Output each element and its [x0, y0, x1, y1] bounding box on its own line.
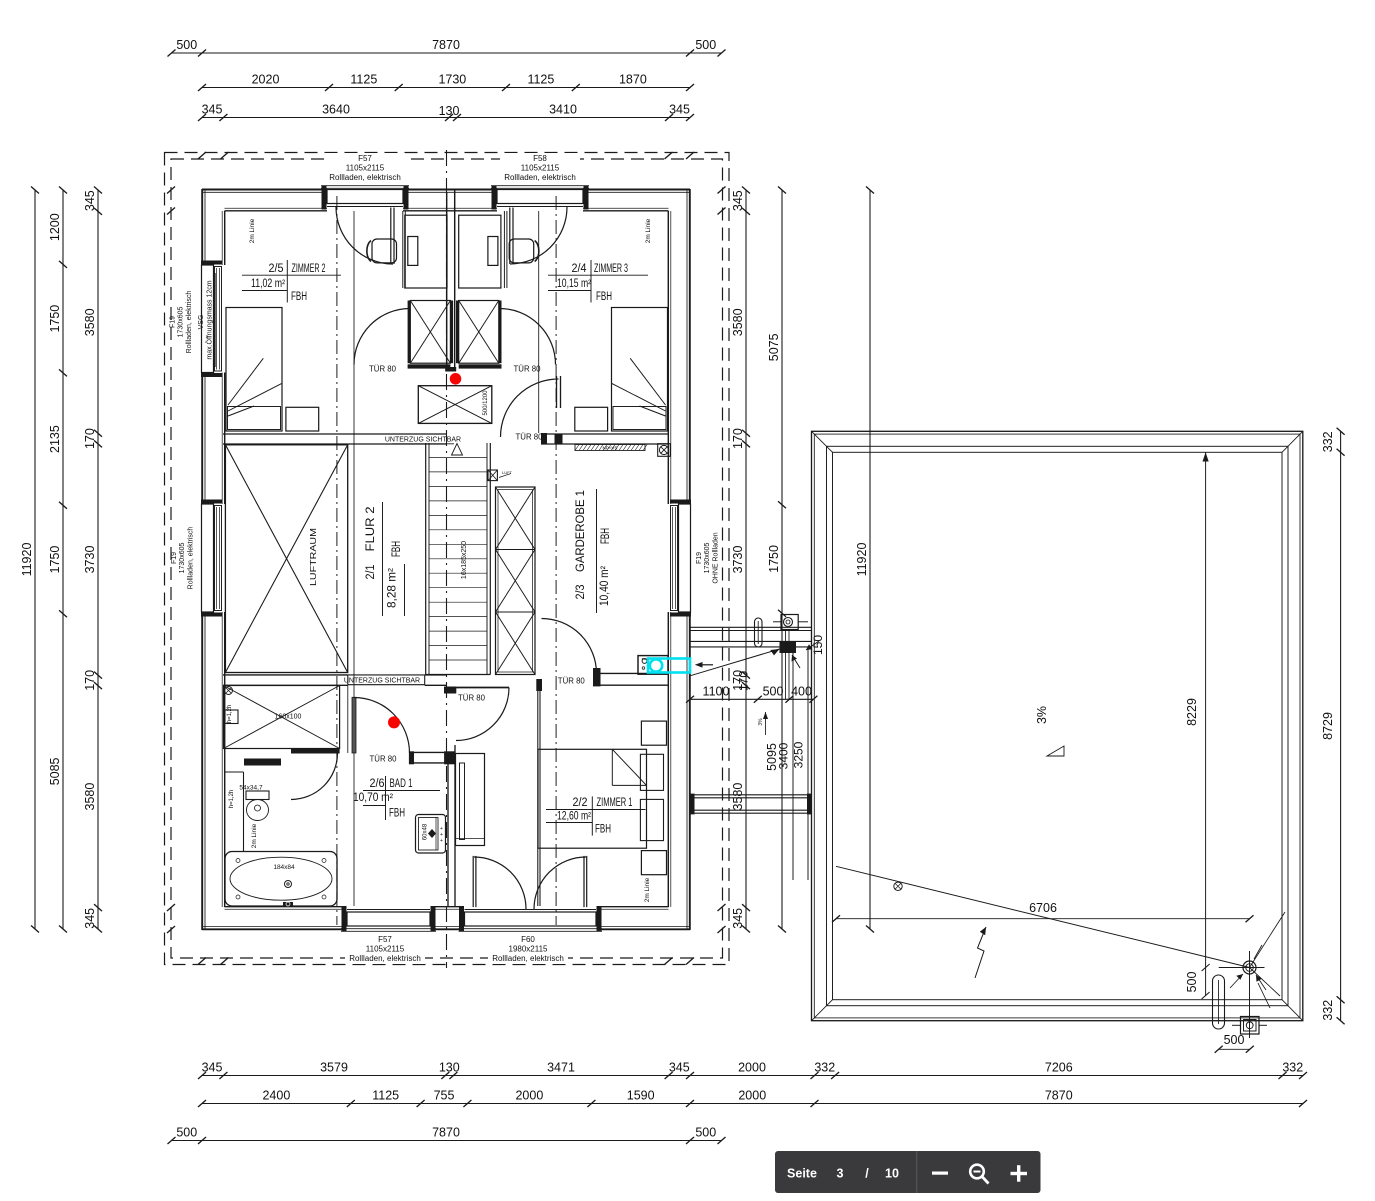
svg-text:10,15 m²: 10,15 m² — [557, 278, 591, 290]
svg-text:3400: 3400 — [777, 742, 791, 769]
svg-text:F60: F60 — [521, 935, 535, 944]
svg-text:1105x2115: 1105x2115 — [521, 164, 560, 173]
svg-text:500: 500 — [1224, 1033, 1245, 1047]
svg-text:BW: BW — [642, 657, 647, 661]
svg-text:TÜR 80: TÜR 80 — [369, 364, 396, 374]
svg-text:1200: 1200 — [48, 213, 62, 241]
svg-text:VSG: VSG — [198, 315, 205, 330]
svg-text:UNTERZUG SICHTBAR: UNTERZUG SICHTBAR — [344, 677, 420, 684]
svg-text:1750: 1750 — [48, 546, 62, 574]
svg-text:UNTERZUG SICHTBAR: UNTERZUG SICHTBAR — [385, 437, 461, 444]
svg-text:2020: 2020 — [252, 73, 280, 87]
svg-text:1750: 1750 — [767, 545, 781, 573]
svg-text:6706: 6706 — [1029, 901, 1057, 915]
svg-text:2m Linie: 2m Linie — [251, 823, 258, 848]
svg-text:345: 345 — [731, 908, 745, 929]
svg-text:Rollladen, elektrisch: Rollladen, elektrisch — [504, 173, 576, 182]
svg-text:ZIMMER 3: ZIMMER 3 — [594, 263, 628, 275]
svg-text:+: + — [440, 838, 443, 844]
svg-text:10: 10 — [885, 1167, 899, 1181]
svg-text:150: 150 — [811, 635, 825, 655]
svg-text:500: 500 — [763, 684, 784, 698]
svg-text:3580: 3580 — [731, 308, 745, 336]
svg-text:TÜR 80: TÜR 80 — [458, 693, 485, 703]
svg-text:/: / — [865, 1167, 869, 1181]
svg-text:345: 345 — [669, 1061, 690, 1075]
svg-text:7870: 7870 — [1045, 1089, 1073, 1103]
svg-text:3580: 3580 — [731, 783, 745, 811]
svg-text:3250: 3250 — [792, 741, 806, 768]
svg-text:3410: 3410 — [549, 103, 577, 117]
svg-text:2/2: 2/2 — [573, 797, 588, 809]
svg-text:500/1200: 500/1200 — [483, 390, 489, 416]
svg-text:3: 3 — [837, 1167, 844, 1181]
svg-text:1870: 1870 — [619, 73, 647, 87]
svg-text:500: 500 — [695, 1126, 716, 1140]
svg-text:11920: 11920 — [855, 543, 869, 577]
svg-text:TÜR 80: TÜR 80 — [514, 364, 541, 374]
svg-text:1730x605: 1730x605 — [179, 543, 186, 574]
svg-text:755: 755 — [434, 1089, 455, 1103]
svg-text:2/6: 2/6 — [370, 778, 385, 790]
svg-text:130: 130 — [439, 104, 460, 118]
svg-text:345: 345 — [669, 103, 690, 117]
svg-text:345: 345 — [83, 908, 97, 929]
svg-text:5085: 5085 — [48, 757, 62, 785]
svg-text:NP=VS: NP=VS — [603, 445, 618, 450]
svg-text:1125: 1125 — [372, 1089, 399, 1103]
svg-text:11920: 11920 — [20, 543, 34, 577]
svg-text:F19: F19 — [170, 316, 177, 328]
svg-text:3580: 3580 — [83, 783, 97, 811]
svg-text:Rollladen, elektrisch: Rollladen, elektrisch — [188, 527, 195, 590]
svg-text:170: 170 — [83, 428, 97, 449]
svg-text:3%: 3% — [758, 718, 764, 726]
svg-text:3730: 3730 — [731, 546, 745, 574]
svg-text:54x34,7: 54x34,7 — [239, 785, 263, 792]
svg-text:max.Öffnungsmass 12cm: max.Öffnungsmass 12cm — [206, 280, 214, 359]
svg-text:1750: 1750 — [48, 305, 62, 333]
svg-text:332: 332 — [1321, 1000, 1335, 1021]
svg-text:170: 170 — [731, 428, 745, 449]
svg-text:Seite: Seite — [787, 1167, 817, 1181]
svg-text:500: 500 — [1185, 972, 1199, 993]
svg-text:2000: 2000 — [515, 1089, 543, 1103]
svg-text:130: 130 — [439, 1061, 460, 1075]
svg-text:BAD 1: BAD 1 — [390, 778, 413, 790]
svg-text:3730: 3730 — [83, 546, 97, 574]
svg-text:FBH: FBH — [600, 528, 612, 544]
svg-text:2135: 2135 — [48, 425, 62, 453]
svg-text:3471: 3471 — [547, 1061, 575, 1075]
svg-text:h=1,2h: h=1,2h — [229, 790, 235, 809]
svg-text:5075: 5075 — [767, 333, 781, 361]
svg-text:10,70 m²: 10,70 m² — [353, 792, 393, 804]
svg-text:7870: 7870 — [432, 1126, 460, 1140]
svg-text:3640: 3640 — [322, 103, 350, 117]
svg-text:345: 345 — [83, 190, 97, 211]
svg-text:170: 170 — [737, 671, 751, 691]
svg-text:11,02 m²: 11,02 m² — [251, 278, 285, 290]
svg-text:7870: 7870 — [432, 38, 460, 52]
svg-text:2m Linie: 2m Linie — [644, 877, 651, 902]
svg-text:F57: F57 — [358, 154, 372, 163]
svg-text:F19: F19 — [696, 552, 703, 564]
svg-text:2m Linie: 2m Linie — [249, 218, 256, 243]
svg-text:400: 400 — [791, 684, 812, 698]
svg-text:F57: F57 — [378, 935, 392, 944]
svg-text:ZIMMER 1: ZIMMER 1 — [597, 797, 633, 809]
svg-text:332: 332 — [1282, 1061, 1303, 1075]
svg-text:2/1: 2/1 — [365, 565, 377, 580]
svg-text:FBH: FBH — [391, 541, 403, 557]
svg-text:1105x2115: 1105x2115 — [366, 945, 405, 954]
svg-text:345: 345 — [202, 103, 223, 117]
svg-text:160x100: 160x100 — [275, 714, 302, 721]
svg-text:TÜR 80: TÜR 80 — [370, 754, 397, 764]
svg-text:FBH: FBH — [291, 291, 307, 303]
svg-text:Rollladen, elektrisch: Rollladen, elektrisch — [186, 291, 193, 354]
svg-text:8,28 m²: 8,28 m² — [387, 568, 399, 608]
svg-text:2000: 2000 — [738, 1089, 766, 1103]
svg-text:10,40 m²: 10,40 m² — [599, 566, 611, 606]
svg-text:60x48: 60x48 — [423, 823, 429, 840]
svg-text:Rollladen, elektrisch: Rollladen, elektrisch — [492, 954, 564, 963]
svg-text:2/4: 2/4 — [572, 263, 588, 275]
svg-text:FLUR 2: FLUR 2 — [365, 507, 377, 552]
svg-text:2/3: 2/3 — [575, 585, 587, 600]
svg-text:Rollladen, elektrisch: Rollladen, elektrisch — [349, 954, 421, 963]
svg-text:TÜR 80: TÜR 80 — [516, 432, 543, 442]
svg-text:1730x605: 1730x605 — [178, 307, 185, 338]
svg-text:7206: 7206 — [1045, 1061, 1073, 1075]
svg-text:LUFTRAUM: LUFTRAUM — [308, 528, 318, 586]
svg-text:TÜR 80: TÜR 80 — [558, 676, 585, 686]
svg-text:332: 332 — [1321, 431, 1335, 452]
svg-text:2000: 2000 — [738, 1061, 766, 1075]
svg-text:332: 332 — [814, 1061, 835, 1075]
svg-text:1730x605: 1730x605 — [704, 543, 711, 574]
svg-text:12,60 m²: 12,60 m² — [557, 811, 591, 823]
svg-text:1100: 1100 — [703, 684, 730, 698]
svg-text:F58: F58 — [533, 154, 547, 163]
svg-text:FBH: FBH — [389, 808, 405, 820]
svg-text:2400: 2400 — [262, 1089, 290, 1103]
svg-text:3580: 3580 — [83, 308, 97, 336]
svg-text:FBH: FBH — [596, 291, 612, 303]
svg-text:LUFT: LUFT — [502, 470, 513, 475]
svg-text:F19: F19 — [171, 552, 178, 564]
svg-text:FBH: FBH — [595, 824, 611, 836]
svg-text:2/5: 2/5 — [269, 263, 284, 275]
svg-text:h=1,2h: h=1,2h — [227, 705, 233, 724]
svg-text:1730: 1730 — [438, 73, 466, 87]
svg-text:3579: 3579 — [320, 1061, 348, 1075]
svg-text:345: 345 — [731, 190, 745, 211]
svg-text:8229: 8229 — [1185, 698, 1199, 726]
svg-text:500: 500 — [176, 38, 197, 52]
svg-text:500: 500 — [176, 1126, 197, 1140]
svg-text:ZIMMER 2: ZIMMER 2 — [292, 263, 326, 275]
svg-text:184x84: 184x84 — [273, 864, 295, 871]
svg-text:1105x2115: 1105x2115 — [346, 164, 385, 173]
svg-text:2m Linie: 2m Linie — [645, 218, 652, 243]
svg-text:1590: 1590 — [627, 1089, 655, 1103]
svg-text:1980x2115: 1980x2115 — [509, 945, 549, 954]
svg-text:8729: 8729 — [1321, 712, 1335, 740]
svg-text:Rollladen, elektrisch: Rollladen, elektrisch — [329, 173, 401, 182]
svg-text:GARDEROBE 1: GARDEROBE 1 — [575, 490, 587, 572]
svg-text:16x185x250: 16x185x250 — [461, 541, 468, 579]
svg-text:345: 345 — [202, 1061, 223, 1075]
svg-text:500: 500 — [695, 38, 716, 52]
svg-text:OHNE Rollladen: OHNE Rollladen — [713, 532, 720, 583]
svg-text:1125: 1125 — [527, 73, 554, 87]
svg-text:170: 170 — [83, 670, 97, 691]
svg-text:3%: 3% — [1035, 706, 1049, 724]
svg-text:1125: 1125 — [350, 73, 377, 87]
